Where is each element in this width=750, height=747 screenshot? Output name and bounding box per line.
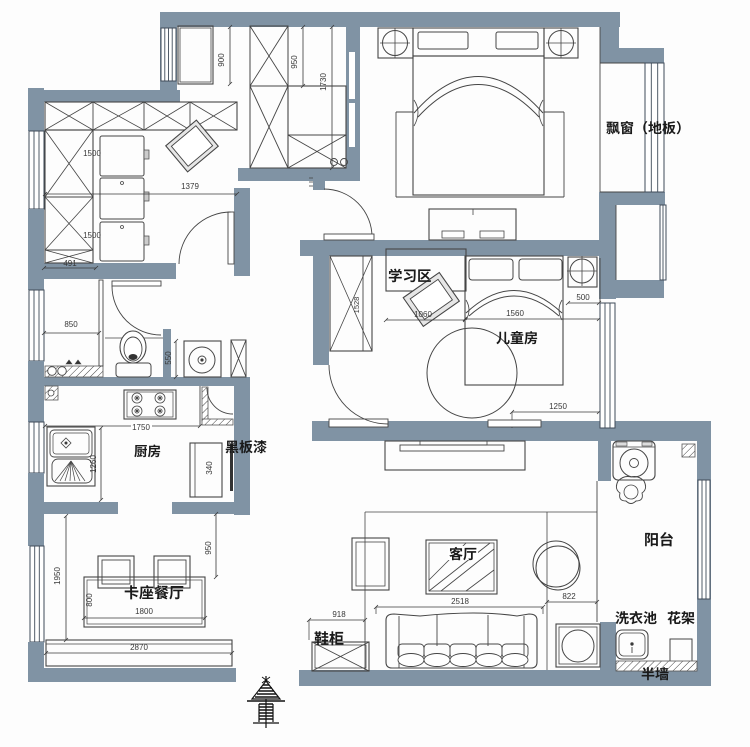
svg-text:850: 850 — [64, 320, 78, 329]
svg-text:491: 491 — [63, 259, 77, 268]
svg-text:1250: 1250 — [549, 402, 567, 411]
svg-text:1750: 1750 — [132, 423, 150, 432]
svg-text:1379: 1379 — [181, 182, 199, 191]
svg-text:1528: 1528 — [352, 297, 361, 314]
svg-text:500: 500 — [576, 293, 590, 302]
svg-text:2518: 2518 — [451, 597, 469, 606]
svg-text:900: 900 — [217, 53, 226, 67]
svg-text:1560: 1560 — [506, 309, 524, 318]
svg-text:550: 550 — [164, 351, 173, 365]
svg-text:1800: 1800 — [135, 607, 153, 616]
svg-text:2870: 2870 — [130, 643, 148, 652]
svg-text:800: 800 — [85, 593, 94, 607]
svg-text:918: 918 — [332, 610, 346, 619]
svg-text:1500: 1500 — [83, 149, 101, 158]
svg-text:340: 340 — [205, 461, 214, 475]
svg-text:950: 950 — [290, 55, 299, 69]
svg-text:1950: 1950 — [53, 567, 62, 585]
svg-text:1060: 1060 — [414, 310, 432, 319]
svg-text:1260: 1260 — [89, 455, 98, 473]
svg-text:950: 950 — [204, 541, 213, 555]
svg-text:1500: 1500 — [83, 231, 101, 240]
svg-text:1730: 1730 — [319, 73, 328, 91]
svg-text:822: 822 — [562, 592, 576, 601]
